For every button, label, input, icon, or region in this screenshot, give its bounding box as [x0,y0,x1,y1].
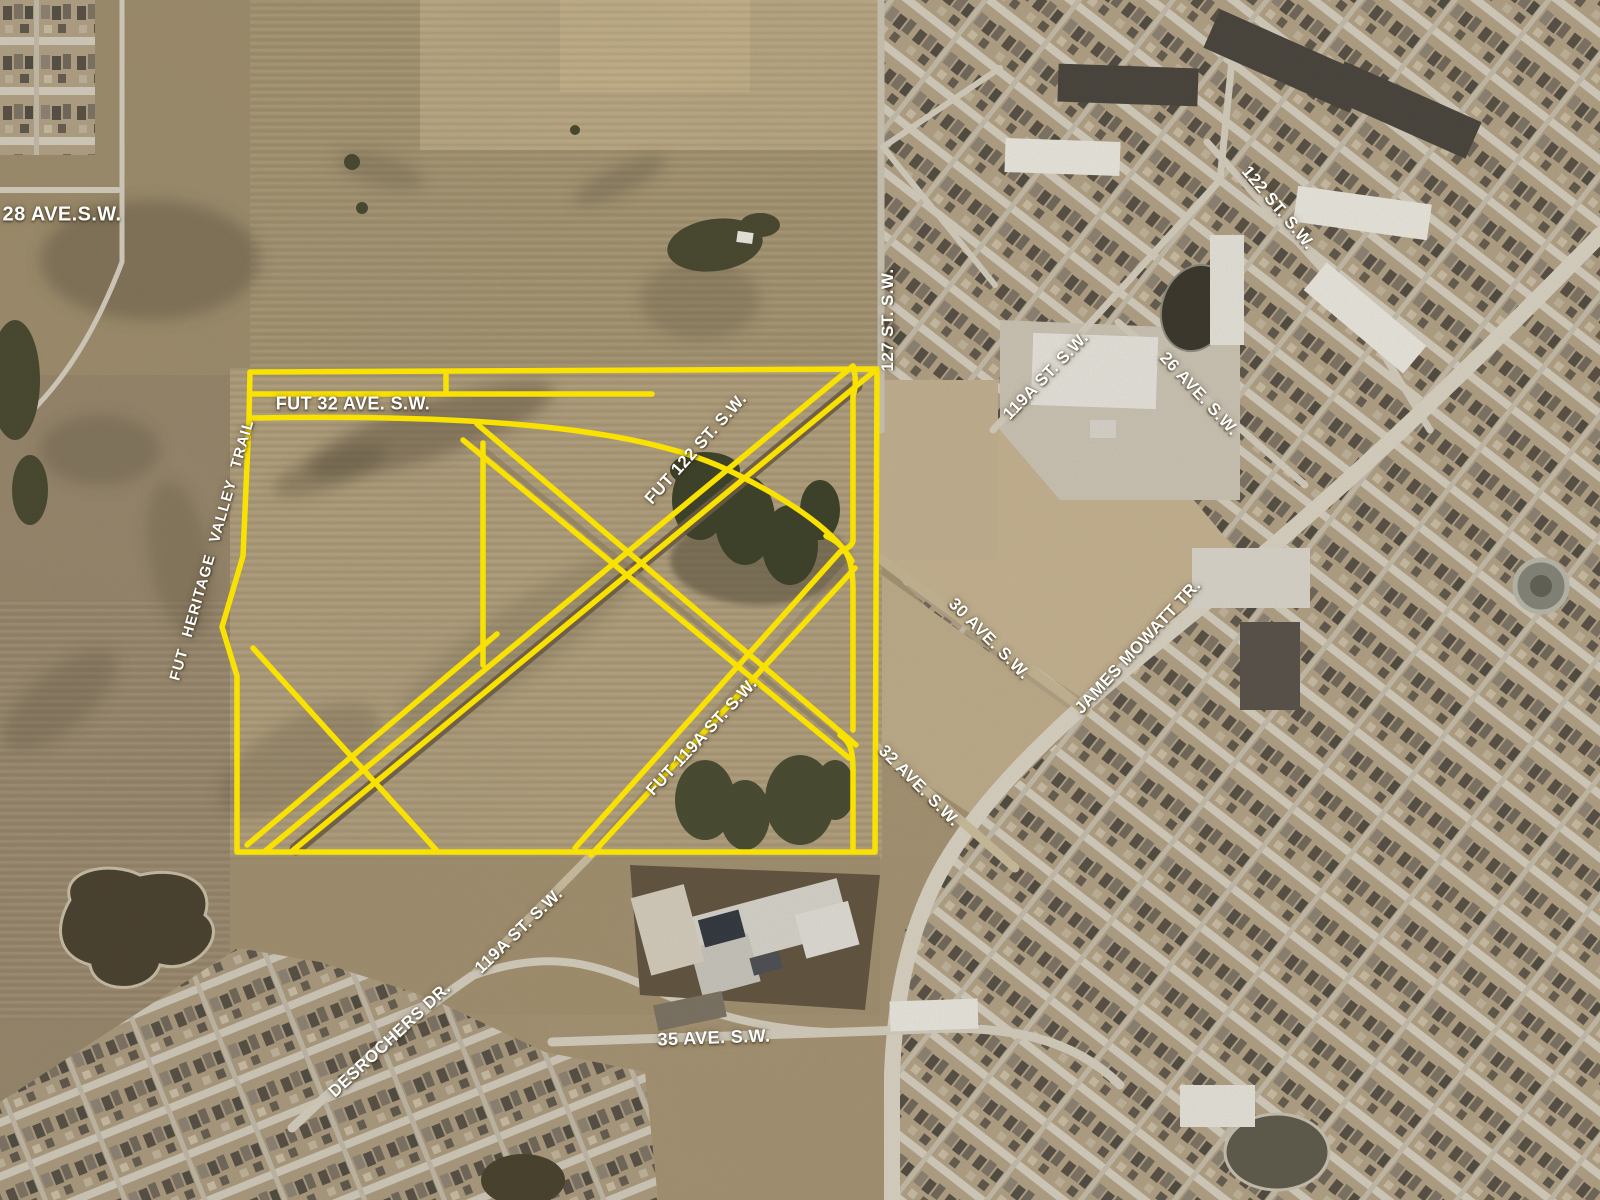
satellite-base [0,0,1600,1200]
aerial-planning-map: 28 AVE.S.W. 122 ST. S.W. 127 ST. S.W. 11… [0,0,1600,1200]
